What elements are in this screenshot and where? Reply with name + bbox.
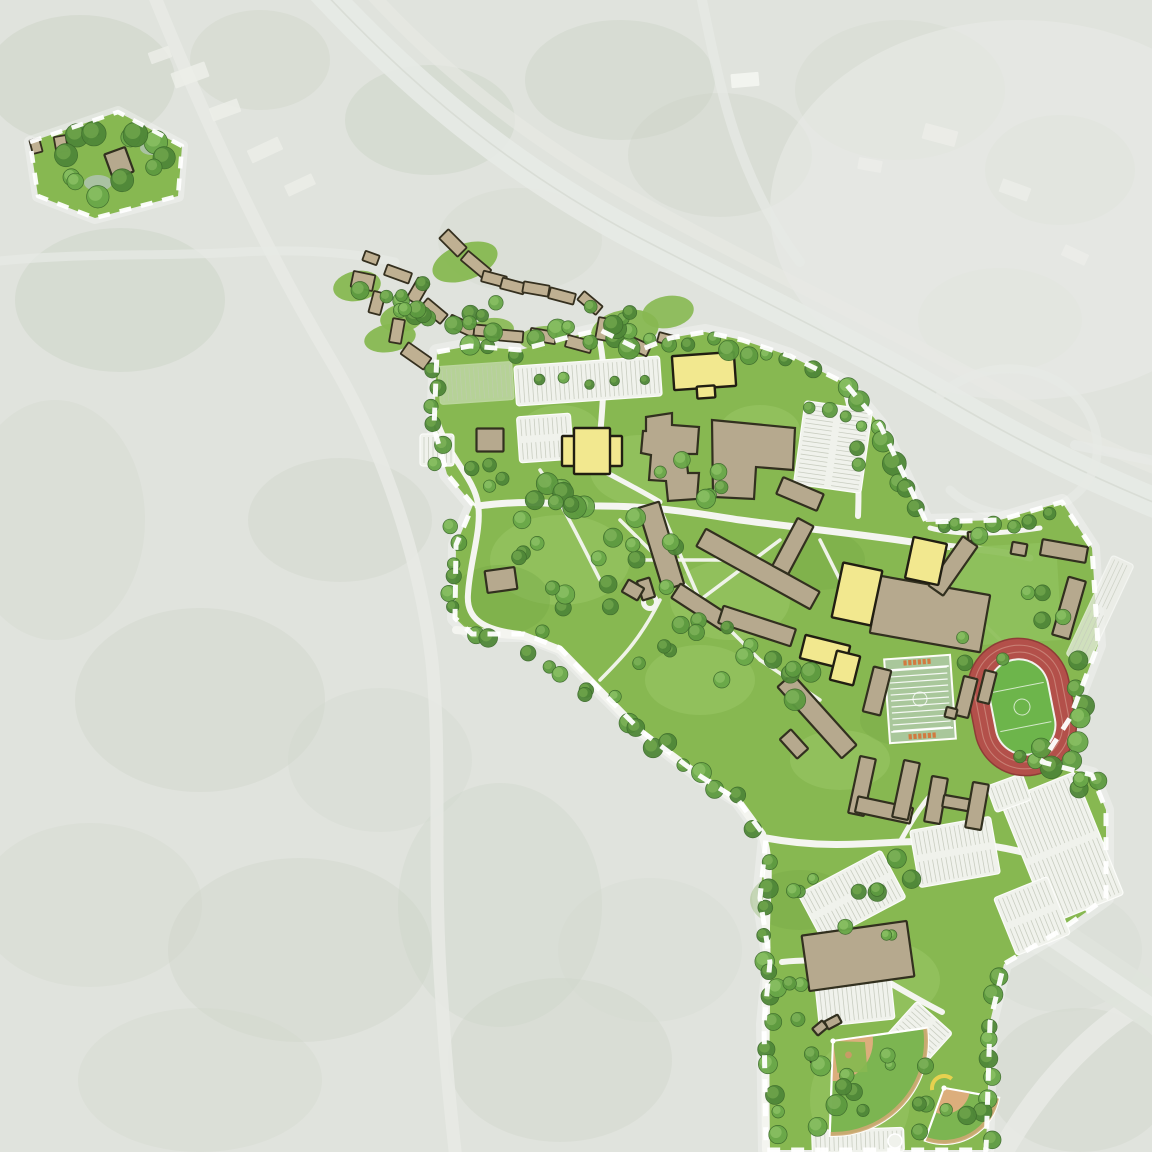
tree	[484, 323, 503, 342]
endzone-lettering	[918, 659, 922, 664]
tree	[772, 1105, 785, 1118]
tree	[870, 883, 884, 897]
tree	[599, 575, 617, 593]
tree	[146, 159, 162, 175]
endzone-lettering	[908, 660, 912, 665]
aerial-blotch	[288, 688, 472, 832]
tree	[1035, 585, 1051, 601]
tree	[917, 1058, 933, 1074]
tree	[957, 631, 969, 643]
tree	[1008, 520, 1021, 533]
tree	[1022, 515, 1037, 530]
tree	[534, 374, 545, 385]
tree	[623, 306, 637, 320]
tree	[633, 657, 646, 670]
tree	[564, 497, 579, 512]
tree	[714, 672, 730, 688]
endzone-lettering	[927, 659, 931, 664]
home-plate	[941, 1085, 946, 1090]
tree	[851, 884, 866, 899]
tree	[769, 1125, 787, 1143]
tree	[783, 977, 797, 991]
tree	[1067, 732, 1088, 753]
endzone-lettering	[913, 660, 917, 665]
building	[485, 567, 518, 593]
tree	[758, 1055, 777, 1074]
tree	[445, 316, 463, 334]
tree	[464, 461, 479, 476]
tree	[520, 645, 536, 661]
endzone-lettering	[932, 732, 936, 737]
proposed-building-chapel	[574, 428, 610, 474]
aerial-blotch	[190, 10, 330, 110]
tree	[822, 402, 837, 417]
aerial-blotch	[75, 608, 325, 792]
tree	[887, 849, 906, 868]
tree	[545, 581, 559, 595]
tree	[674, 451, 691, 468]
tree	[628, 551, 645, 568]
tree	[654, 466, 666, 478]
overflow-grass-parking	[438, 361, 514, 404]
aerial-blotch	[78, 1008, 322, 1152]
endzone-lettering	[918, 733, 922, 738]
tree	[536, 625, 550, 639]
tree	[801, 662, 821, 682]
tree	[791, 1012, 805, 1026]
tree	[808, 1117, 827, 1136]
tree	[902, 870, 921, 889]
tree	[602, 599, 618, 615]
tree	[659, 580, 674, 595]
tree	[496, 472, 509, 485]
tree	[912, 1097, 926, 1111]
home-plate	[830, 1038, 835, 1043]
tree	[489, 296, 504, 311]
tree	[640, 375, 649, 384]
tree	[681, 338, 695, 352]
pitchers-mound	[845, 1052, 852, 1059]
tree	[1069, 651, 1088, 670]
tree	[123, 122, 148, 147]
tree	[483, 480, 495, 492]
tree	[808, 874, 819, 885]
football-field	[884, 655, 956, 743]
aerial-blotch	[558, 878, 742, 1022]
tree	[530, 536, 544, 550]
campus-plan-svg	[0, 0, 1152, 1152]
tree	[380, 290, 393, 303]
tree	[443, 519, 458, 534]
tree	[718, 340, 739, 361]
tree	[398, 302, 411, 315]
proposed-building	[697, 385, 716, 398]
tree	[740, 347, 758, 365]
tree	[395, 290, 407, 302]
tree	[940, 1103, 953, 1116]
tree	[479, 629, 498, 648]
tree	[657, 640, 671, 654]
tree	[840, 411, 851, 422]
building	[944, 707, 957, 719]
tree	[1021, 586, 1035, 600]
tree	[67, 173, 84, 190]
tree	[715, 481, 728, 494]
tree	[1014, 750, 1027, 763]
tree	[997, 653, 1009, 665]
plaza-fountain	[888, 1134, 902, 1148]
tree	[462, 316, 476, 330]
tree	[562, 321, 575, 334]
tree	[111, 169, 134, 192]
tree	[835, 1079, 852, 1096]
tree	[1043, 507, 1056, 520]
tree	[1070, 708, 1090, 728]
building	[477, 429, 504, 452]
tree	[585, 380, 595, 390]
tree	[764, 651, 782, 669]
tree	[730, 787, 746, 803]
tree	[696, 489, 715, 508]
tree	[548, 495, 563, 510]
tree	[710, 463, 727, 480]
tree	[803, 402, 815, 414]
tree	[552, 666, 568, 682]
tree	[765, 1085, 784, 1104]
tree	[662, 534, 679, 551]
building	[1011, 542, 1028, 556]
tree	[786, 884, 800, 898]
tree	[688, 624, 704, 640]
tree	[618, 337, 640, 359]
endzone-lettering	[908, 734, 912, 739]
tree	[850, 441, 865, 456]
tree	[558, 372, 569, 383]
tree	[881, 930, 892, 941]
tree	[804, 1047, 819, 1062]
faded-building	[730, 72, 759, 88]
tree	[957, 655, 973, 671]
endzone-lettering	[923, 733, 927, 738]
campus-master-plan-map	[0, 0, 1152, 1152]
endzone-lettering	[922, 659, 926, 664]
tree	[584, 300, 597, 313]
tree	[721, 621, 734, 634]
tree	[911, 1124, 927, 1140]
tree	[785, 661, 801, 677]
tree	[610, 376, 620, 386]
tree	[351, 281, 369, 299]
tree	[483, 458, 497, 472]
tree	[672, 616, 689, 633]
endzone-lettering	[903, 660, 907, 665]
tree	[1034, 612, 1051, 629]
tree	[578, 687, 592, 701]
endzone-lettering	[928, 733, 932, 738]
tree	[856, 421, 867, 432]
tree	[428, 457, 441, 470]
tree	[852, 458, 865, 471]
tree	[1055, 609, 1071, 625]
tree	[476, 309, 489, 322]
tree	[583, 335, 598, 350]
tree	[736, 648, 754, 666]
tree	[626, 538, 640, 552]
tree	[971, 527, 988, 544]
tree	[838, 919, 853, 934]
tree	[513, 511, 531, 529]
tree	[626, 508, 646, 528]
tree	[784, 689, 806, 711]
tree	[512, 550, 527, 565]
tree	[857, 1104, 869, 1116]
tree	[87, 185, 109, 207]
tree	[416, 276, 430, 290]
tree	[525, 491, 544, 510]
tree	[82, 121, 106, 145]
tree	[958, 1106, 977, 1125]
proposed-building	[905, 537, 947, 585]
endzone-lettering	[913, 734, 917, 739]
tree	[603, 528, 622, 547]
tree	[826, 1094, 847, 1115]
tree	[54, 144, 77, 167]
tree	[880, 1048, 895, 1063]
tree	[591, 551, 606, 566]
